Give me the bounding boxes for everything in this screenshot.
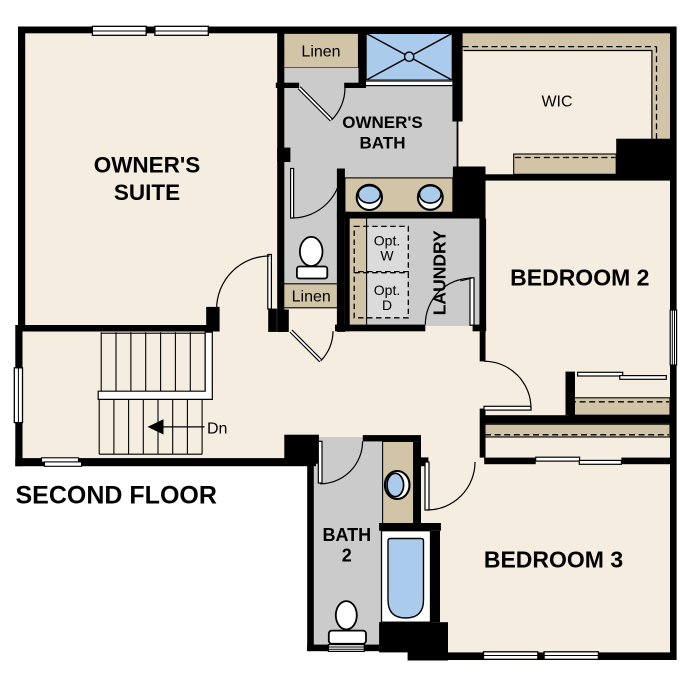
svg-text:LAUNDRY: LAUNDRY xyxy=(429,230,449,315)
svg-text:OWNER'S: OWNER'S xyxy=(94,153,201,178)
svg-text:BATH: BATH xyxy=(322,525,371,545)
svg-text:SUITE: SUITE xyxy=(114,180,180,205)
svg-text:BEDROOM 2: BEDROOM 2 xyxy=(510,265,649,291)
svg-text:BEDROOM 3: BEDROOM 3 xyxy=(484,547,623,573)
svg-text:Opt.: Opt. xyxy=(374,282,400,298)
svg-text:WIC: WIC xyxy=(541,93,572,110)
svg-text:W: W xyxy=(380,247,394,263)
svg-text:Opt.: Opt. xyxy=(374,233,400,249)
svg-text:SECOND FLOOR: SECOND FLOOR xyxy=(16,482,217,510)
svg-text:OWNER'S: OWNER'S xyxy=(342,113,423,132)
svg-text:Dn: Dn xyxy=(207,420,227,437)
svg-text:Linen: Linen xyxy=(301,43,340,60)
svg-text:2: 2 xyxy=(342,546,352,566)
svg-text:BATH: BATH xyxy=(360,134,406,153)
svg-text:Linen: Linen xyxy=(292,289,331,306)
svg-text:D: D xyxy=(382,297,392,313)
